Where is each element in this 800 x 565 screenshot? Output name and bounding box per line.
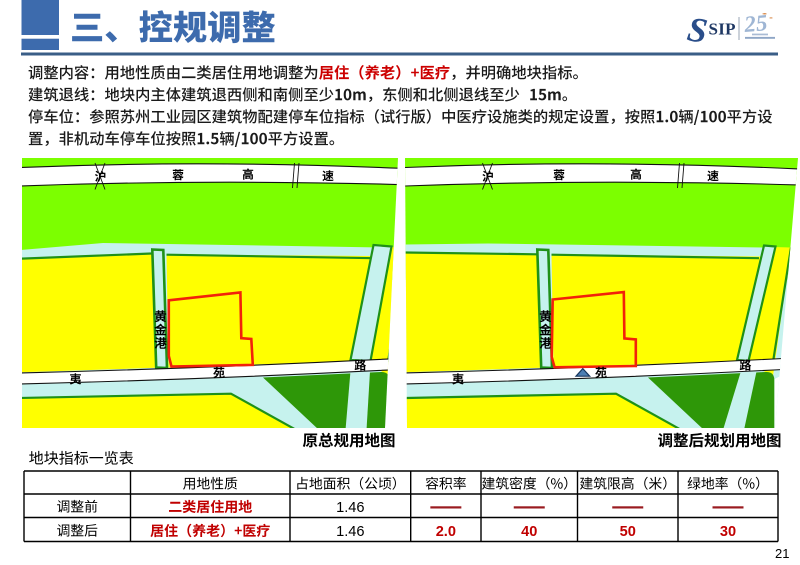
svg-text:1.46: 1.46 [336,500,364,516]
svg-text:50: 50 [620,524,636,540]
svg-text:40: 40 [521,524,537,540]
svg-text:21: 21 [775,546,789,561]
svg-text:1.46: 1.46 [336,524,364,540]
svg-text:2.0: 2.0 [436,524,456,540]
svg-text:SIP: SIP [709,20,736,39]
svg-text:30: 30 [720,524,736,540]
svg-text:S: S [685,9,710,51]
